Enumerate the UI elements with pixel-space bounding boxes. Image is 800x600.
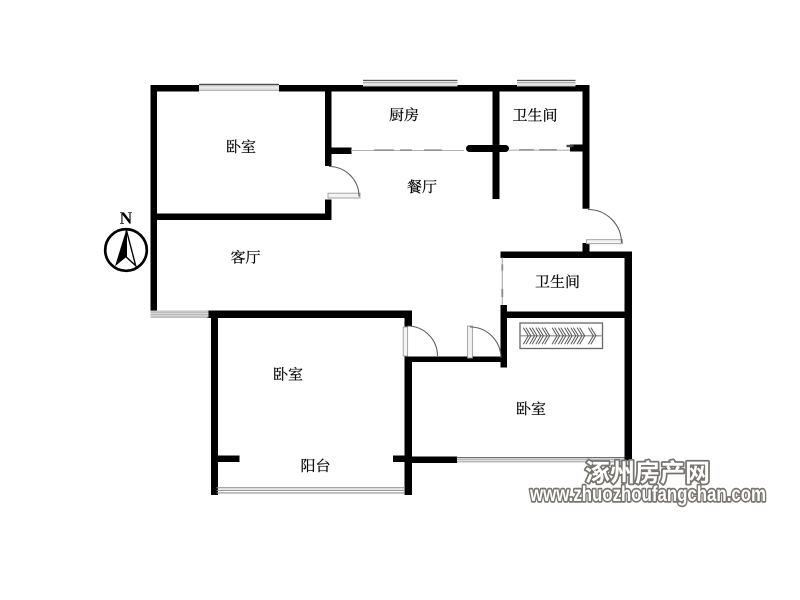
svg-text:www.zhuozhoufangchan.com: www.zhuozhoufangchan.com (529, 482, 766, 506)
